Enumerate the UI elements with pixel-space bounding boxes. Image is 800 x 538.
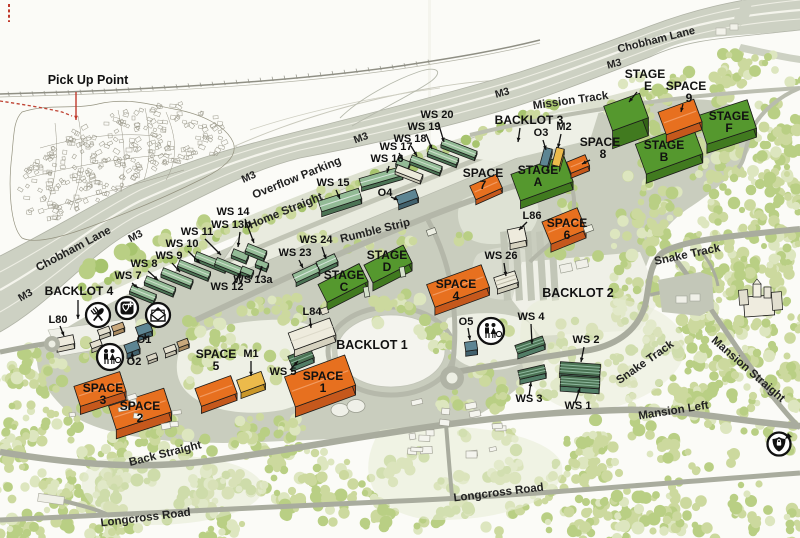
svg-text:WS 13b: WS 13b: [211, 219, 251, 231]
svg-text:WS 10: WS 10: [165, 238, 198, 250]
svg-text:WS 26: WS 26: [484, 250, 517, 262]
svg-text:7: 7: [480, 178, 487, 192]
svg-text:9: 9: [686, 91, 693, 105]
svg-text:WS 16: WS 16: [370, 153, 403, 165]
svg-text:WS 20: WS 20: [420, 109, 453, 121]
svg-text:WS 4: WS 4: [518, 311, 546, 323]
svg-text:M1: M1: [243, 348, 258, 360]
svg-text:WS 9: WS 9: [156, 250, 183, 262]
svg-text:C: C: [340, 280, 349, 294]
svg-text:O5: O5: [459, 316, 474, 328]
svg-text:A: A: [534, 175, 543, 189]
svg-text:6: 6: [564, 228, 571, 242]
svg-text:BACKLOT 3: BACKLOT 3: [495, 113, 564, 127]
svg-text:L80: L80: [49, 314, 68, 326]
svg-text:O1: O1: [137, 334, 152, 346]
svg-text:4: 4: [453, 289, 460, 303]
svg-text:WS 13a: WS 13a: [233, 274, 273, 286]
svg-text:M2: M2: [556, 121, 571, 133]
svg-text:O2: O2: [127, 356, 142, 368]
svg-text:WS 23: WS 23: [278, 247, 311, 259]
svg-text:WS 14: WS 14: [216, 206, 250, 218]
svg-text:D: D: [383, 260, 392, 274]
svg-text:3: 3: [100, 393, 107, 407]
svg-text:WS 17: WS 17: [379, 141, 412, 153]
svg-text:BACKLOT 1: BACKLOT 1: [336, 338, 408, 352]
svg-text:BACKLOT 2: BACKLOT 2: [542, 286, 614, 300]
svg-text:5: 5: [213, 359, 220, 373]
svg-text:WS 24: WS 24: [299, 234, 333, 246]
svg-text:E: E: [644, 79, 652, 93]
svg-text:1: 1: [320, 381, 327, 395]
svg-text:L84: L84: [303, 306, 323, 318]
svg-text:WS 19: WS 19: [407, 121, 440, 133]
svg-text:WS 7: WS 7: [115, 270, 142, 282]
svg-text:B: B: [660, 150, 669, 164]
svg-text:L86: L86: [523, 210, 542, 222]
svg-text:WS 8: WS 8: [131, 258, 158, 270]
svg-text:WS 15: WS 15: [316, 177, 349, 189]
svg-text:WS 2: WS 2: [573, 334, 600, 346]
svg-text:WS 1: WS 1: [565, 400, 592, 412]
svg-text:8: 8: [600, 147, 607, 161]
svg-text:O3: O3: [534, 127, 549, 139]
svg-text:2: 2: [137, 411, 144, 425]
svg-text:Pick Up Point: Pick Up Point: [48, 73, 129, 87]
svg-text:BACKLOT 4: BACKLOT 4: [45, 284, 114, 298]
svg-text:WS 11: WS 11: [181, 226, 213, 238]
svg-text:F: F: [725, 121, 732, 135]
svg-text:O4: O4: [378, 187, 394, 199]
